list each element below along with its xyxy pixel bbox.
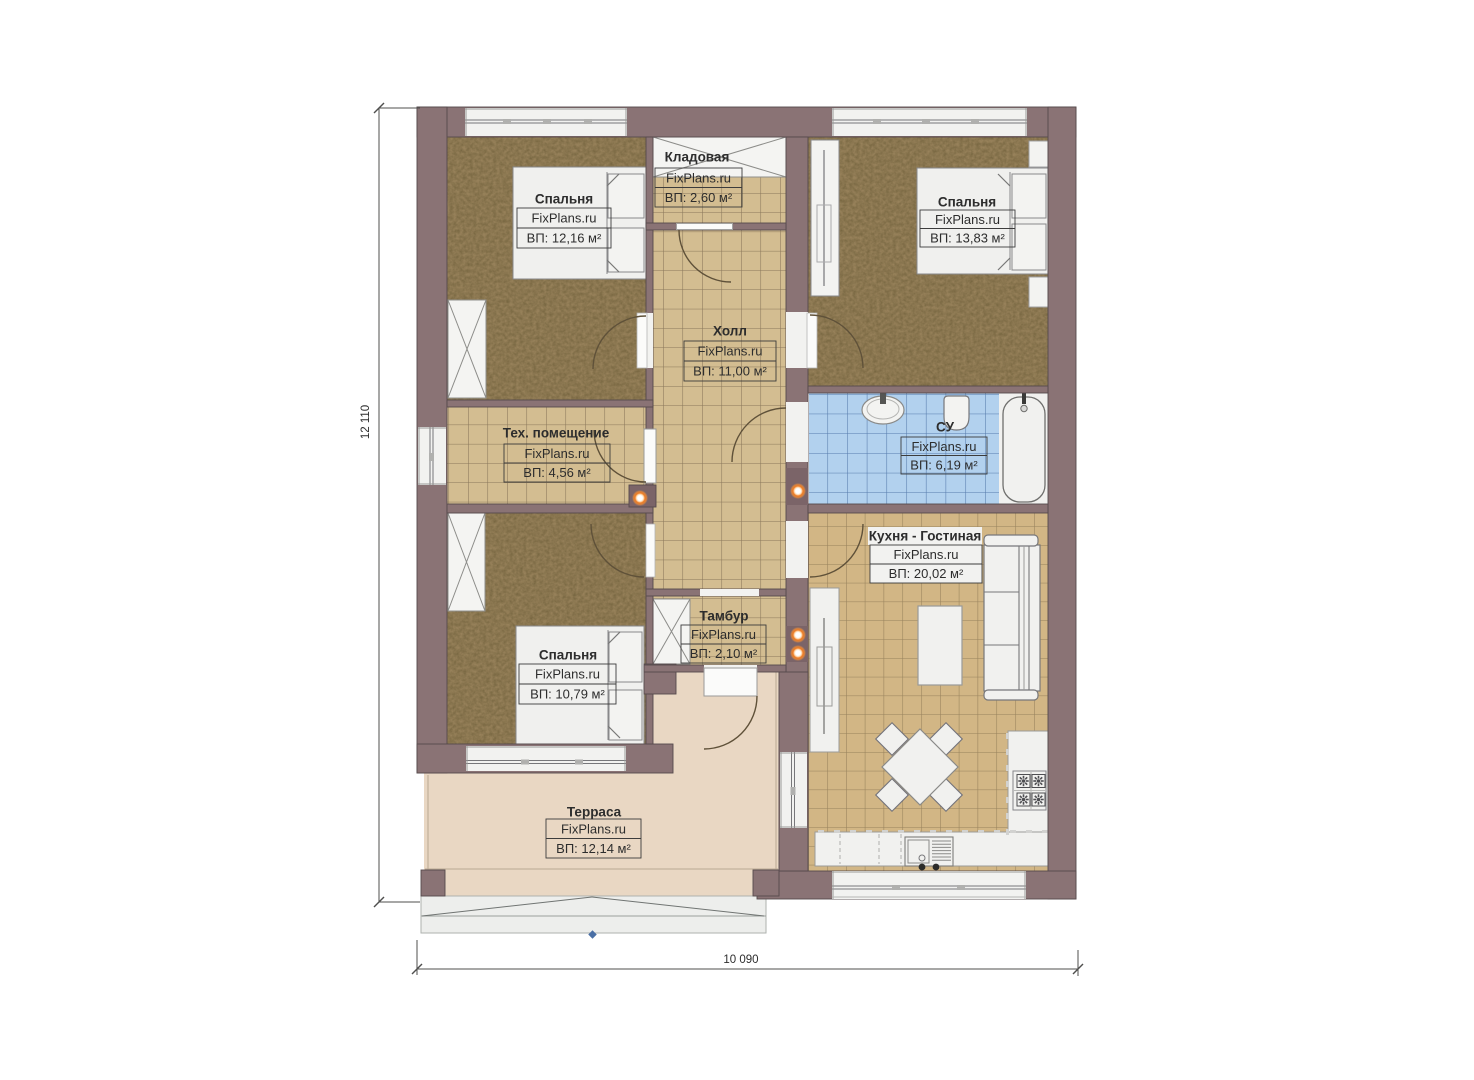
svg-text:ВП: 12,14 м²: ВП: 12,14 м² (556, 841, 631, 856)
svg-text:ВП: 10,79 м²: ВП: 10,79 м² (530, 687, 605, 702)
svg-text:Спальня: Спальня (938, 195, 996, 210)
svg-text:FixPlans.ru: FixPlans.ru (935, 212, 1000, 227)
svg-text:Кухня - Гостиная: Кухня - Гостиная (869, 529, 981, 544)
svg-text:Кладовая: Кладовая (665, 150, 730, 165)
svg-text:FixPlans.ru: FixPlans.ru (911, 439, 976, 454)
svg-text:Терраса: Терраса (567, 805, 622, 820)
svg-text:FixPlans.ru: FixPlans.ru (561, 821, 626, 836)
svg-text:ВП: 2,60 м²: ВП: 2,60 м² (665, 190, 733, 205)
svg-text:FixPlans.ru: FixPlans.ru (524, 446, 589, 461)
svg-text:ВП: 2,10 м²: ВП: 2,10 м² (690, 646, 758, 661)
svg-text:Тамбур: Тамбур (700, 609, 749, 624)
svg-text:ВП: 20,02 м²: ВП: 20,02 м² (889, 566, 964, 581)
svg-text:ВП: 12,16 м²: ВП: 12,16 м² (527, 231, 602, 246)
svg-text:СУ: СУ (936, 420, 955, 435)
svg-text:Холл: Холл (713, 324, 747, 339)
svg-text:FixPlans.ru: FixPlans.ru (531, 211, 596, 226)
svg-text:FixPlans.ru: FixPlans.ru (893, 547, 958, 562)
svg-text:12 110: 12 110 (360, 405, 372, 439)
svg-text:ВП: 4,56 м²: ВП: 4,56 м² (523, 465, 591, 480)
svg-text:Спальня: Спальня (535, 192, 593, 207)
svg-text:Тех. помещение: Тех. помещение (503, 426, 610, 441)
svg-text:FixPlans.ru: FixPlans.ru (666, 170, 731, 185)
svg-text:ВП: 6,19 м²: ВП: 6,19 м² (910, 457, 978, 472)
svg-text:ВП: 11,00 м²: ВП: 11,00 м² (693, 364, 767, 379)
svg-text:Спальня: Спальня (539, 648, 597, 663)
svg-text:FixPlans.ru: FixPlans.ru (691, 627, 756, 642)
svg-text:FixPlans.ru: FixPlans.ru (535, 667, 600, 682)
svg-text:10 090: 10 090 (723, 954, 758, 966)
svg-text:ВП: 13,83 м²: ВП: 13,83 м² (930, 230, 1005, 245)
svg-text:FixPlans.ru: FixPlans.ru (697, 344, 762, 359)
